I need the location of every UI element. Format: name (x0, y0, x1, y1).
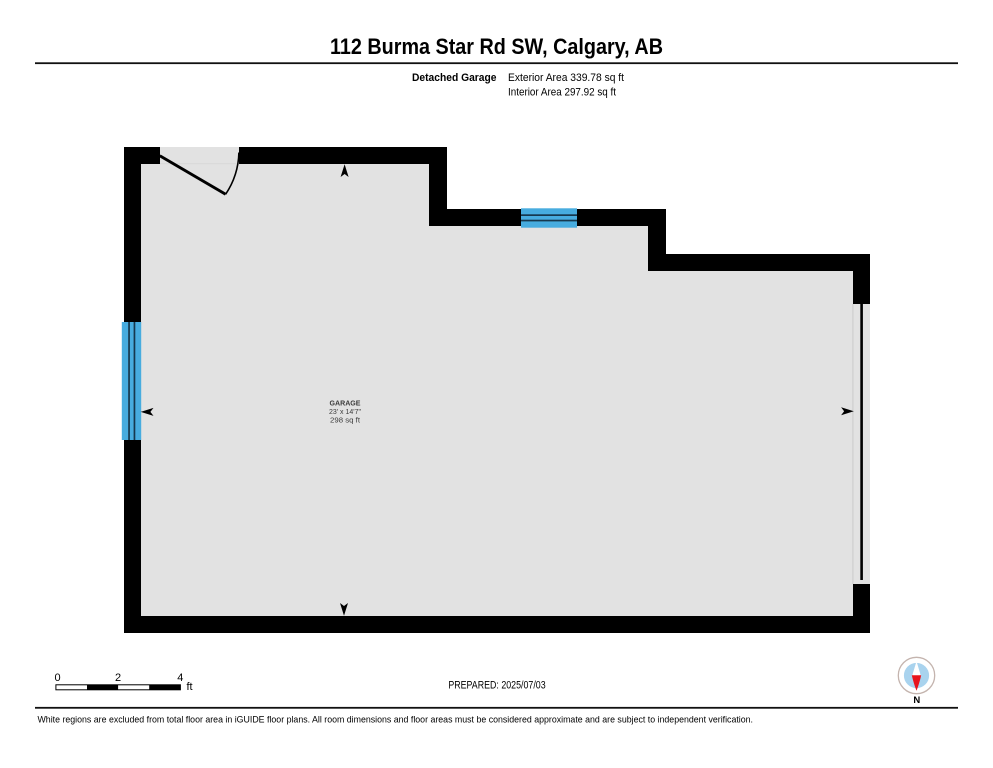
svg-text:PREPARED: 2025/07/03: PREPARED: 2025/07/03 (448, 679, 545, 691)
svg-text:ft: ft (187, 681, 193, 693)
svg-text:298 sq ft: 298 sq ft (330, 416, 361, 425)
svg-text:N: N (913, 695, 920, 706)
svg-text:Exterior Area 339.78 sq ft: Exterior Area 339.78 sq ft (508, 72, 624, 84)
svg-text:Detached Garage: Detached Garage (412, 72, 497, 84)
svg-text:Interior Area 297.92 sq ft: Interior Area 297.92 sq ft (508, 87, 616, 99)
svg-text:White regions are excluded fro: White regions are excluded from total fl… (38, 715, 754, 725)
svg-text:2: 2 (115, 672, 121, 684)
svg-text:112 Burma Star Rd SW, Calgary,: 112 Burma Star Rd SW, Calgary, AB (330, 34, 663, 59)
svg-text:0: 0 (54, 672, 60, 684)
svg-text:4: 4 (177, 672, 183, 684)
